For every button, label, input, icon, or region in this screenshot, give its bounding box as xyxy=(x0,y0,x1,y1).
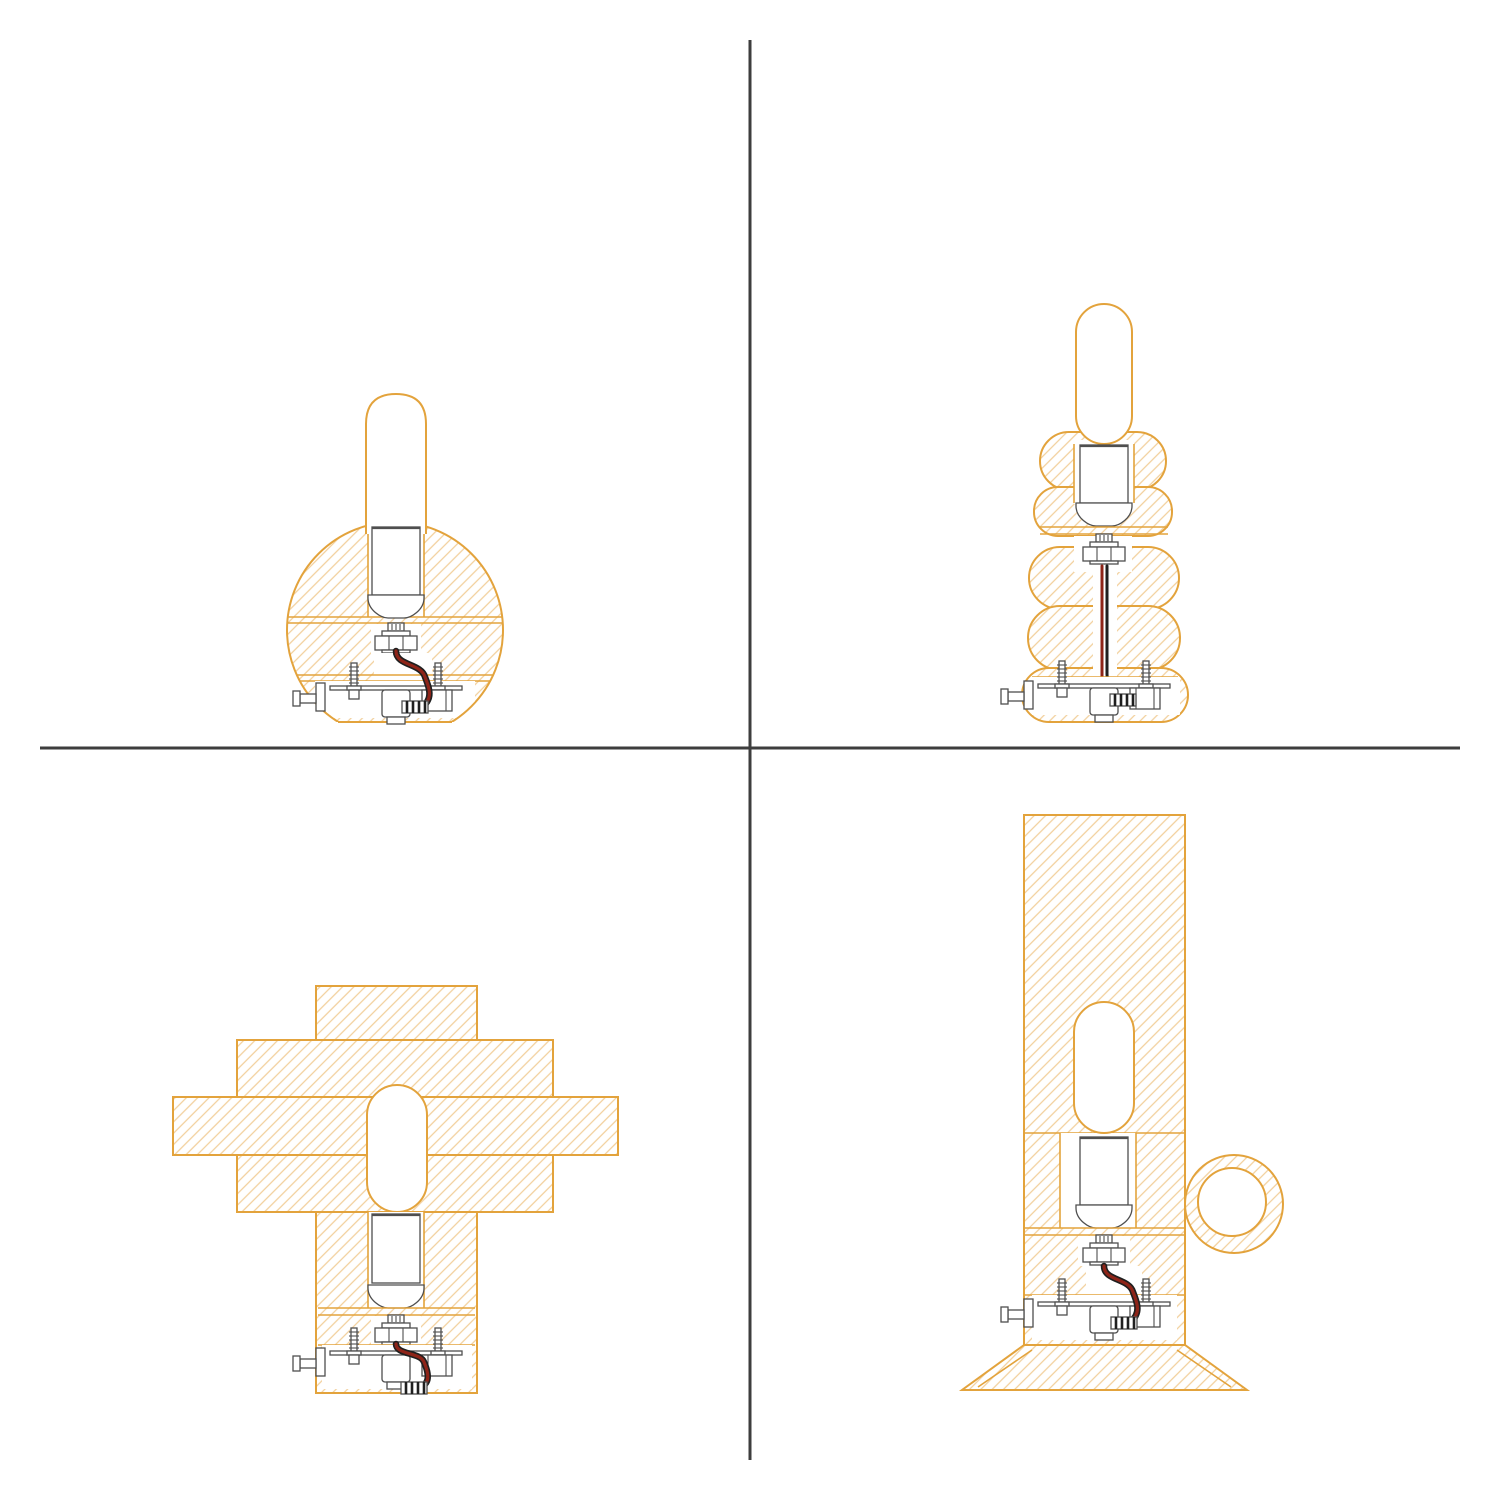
panel-cylinder-lamp-section xyxy=(962,815,1283,1390)
lamp-section-drawings xyxy=(0,0,1500,1500)
flared-foot xyxy=(962,1345,1247,1390)
panel-sphere-lamp-section xyxy=(280,394,510,744)
bulb-neck xyxy=(1080,1137,1128,1205)
panel-stepped-cross-lamp-section xyxy=(173,986,618,1394)
bulb-neck xyxy=(372,1214,420,1283)
tube-bulb xyxy=(366,394,426,534)
wire-plug xyxy=(1110,694,1136,706)
top-slab xyxy=(316,986,477,1040)
wire-plug xyxy=(402,701,428,713)
wire-plug xyxy=(401,1382,427,1394)
tube-bulb xyxy=(367,1085,427,1212)
bulb-neck xyxy=(372,527,420,595)
ring-handle xyxy=(1185,1155,1283,1253)
drawing-sheet xyxy=(0,0,1500,1500)
bulb-neck xyxy=(1080,445,1128,503)
tube-bulb xyxy=(1076,304,1132,444)
panel-stacked-bubbles-lamp-section xyxy=(1001,304,1188,722)
wire-plug xyxy=(1111,1317,1137,1329)
tube-bulb xyxy=(1074,1002,1134,1133)
